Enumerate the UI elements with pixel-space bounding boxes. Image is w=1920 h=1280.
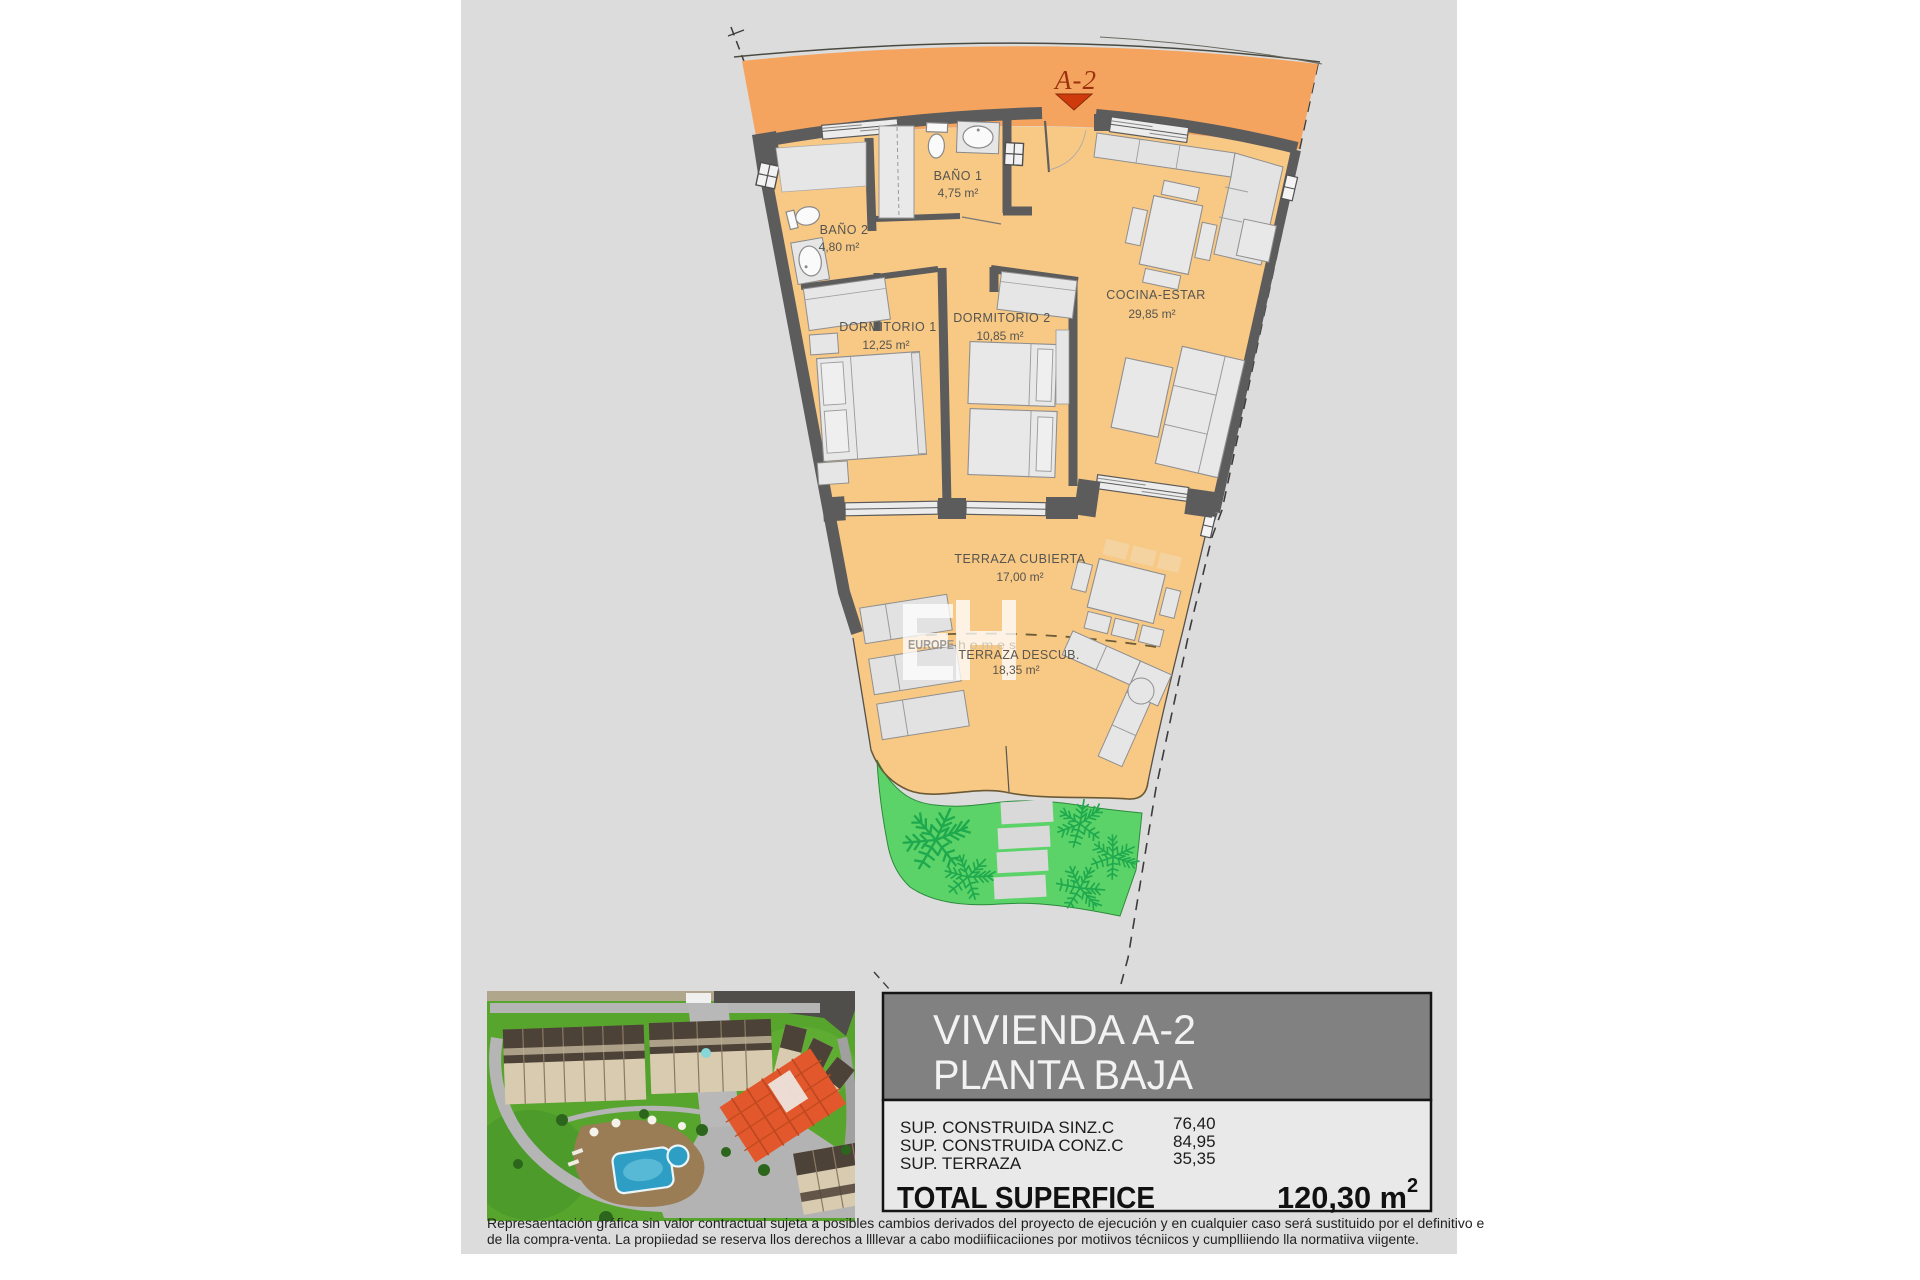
svg-text:120,30 m: 120,30 m [1277,1180,1407,1215]
svg-text:SUP. TERRAZA: SUP. TERRAZA [900,1154,1022,1173]
svg-text:76,40: 76,40 [1173,1114,1216,1133]
svg-text:SUP. CONSTRUIDA CONZ.C: SUP. CONSTRUIDA CONZ.C [900,1136,1124,1155]
svg-text:4,80 m²: 4,80 m² [819,240,860,254]
svg-text:PLANTA BAJA: PLANTA BAJA [933,1051,1193,1098]
svg-text:18,35 m²: 18,35 m² [992,663,1039,677]
svg-text:TERRAZA DESCUB.: TERRAZA DESCUB. [958,648,1079,662]
svg-text:BAÑO 2: BAÑO 2 [820,223,869,237]
svg-text:17,00 m²: 17,00 m² [996,570,1043,584]
svg-text:12,25 m²: 12,25 m² [862,338,909,352]
svg-text:DORMITORIO 1: DORMITORIO 1 [839,320,936,334]
svg-text:COCINA-ESTAR: COCINA-ESTAR [1106,288,1206,302]
svg-text:VIVIENDA A-2: VIVIENDA A-2 [933,1006,1196,1053]
svg-text:29,85 m²: 29,85 m² [1128,307,1175,321]
svg-text:Represaentación gráfica sin va: Represaentación gráfica sin valor contra… [487,1216,1492,1231]
svg-text:35,35: 35,35 [1173,1149,1216,1168]
svg-text:2: 2 [1407,1175,1418,1197]
svg-text:4,75 m²: 4,75 m² [938,186,979,200]
svg-text:EUROPE: EUROPE [908,637,954,652]
svg-text:de lla compra-venta. La propii: de lla compra-venta. La propiiedad se re… [487,1232,1419,1247]
svg-text:10,85 m²: 10,85 m² [976,329,1023,343]
svg-text:A-2: A-2 [1053,65,1097,95]
svg-text:TOTAL SUPERFICE: TOTAL SUPERFICE [897,1180,1155,1215]
svg-text:DORMITORIO 2: DORMITORIO 2 [953,311,1050,325]
svg-text:SUP. CONSTRUIDA SINZ.C: SUP. CONSTRUIDA SINZ.C [900,1118,1114,1137]
svg-text:BAÑO 1: BAÑO 1 [934,169,983,183]
svg-text:TERRAZA CUBIERTA: TERRAZA CUBIERTA [954,552,1085,566]
